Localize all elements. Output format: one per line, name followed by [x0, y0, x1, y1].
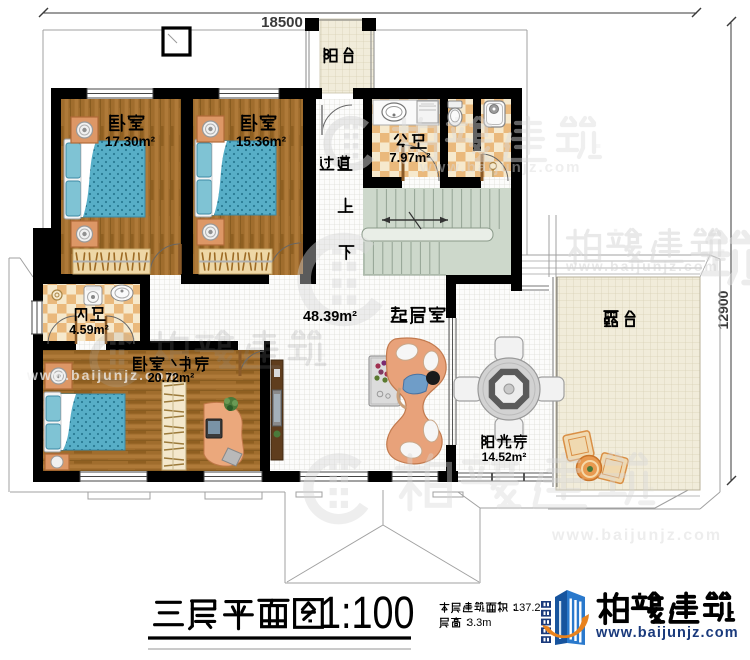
- svg-text:18500: 18500: [261, 14, 303, 31]
- svg-text:15.36m²: 15.36m²: [236, 134, 287, 149]
- svg-text:4.59m²: 4.59m²: [69, 323, 109, 337]
- svg-text:1:100: 1:100: [320, 587, 415, 638]
- svg-text:20.72m²: 20.72m²: [148, 371, 195, 385]
- svg-text:www.baijunjz.com: www.baijunjz.com: [565, 258, 719, 274]
- svg-text:www.baijunjz.com: www.baijunjz.com: [551, 527, 722, 544]
- svg-text:48.39m²: 48.39m²: [303, 309, 357, 325]
- svg-text:137.2: 137.2: [513, 602, 541, 614]
- svg-text:3.3m: 3.3m: [467, 617, 491, 629]
- svg-text:www.baijunjz.com: www.baijunjz.com: [419, 159, 581, 176]
- svg-text:12900: 12900: [715, 290, 731, 329]
- svg-text:7.97m²: 7.97m²: [389, 150, 431, 165]
- svg-text:17.30m²: 17.30m²: [105, 134, 156, 149]
- svg-text:14.52m²: 14.52m²: [482, 450, 527, 464]
- svg-text:www.baijunjz.com: www.baijunjz.com: [595, 625, 739, 641]
